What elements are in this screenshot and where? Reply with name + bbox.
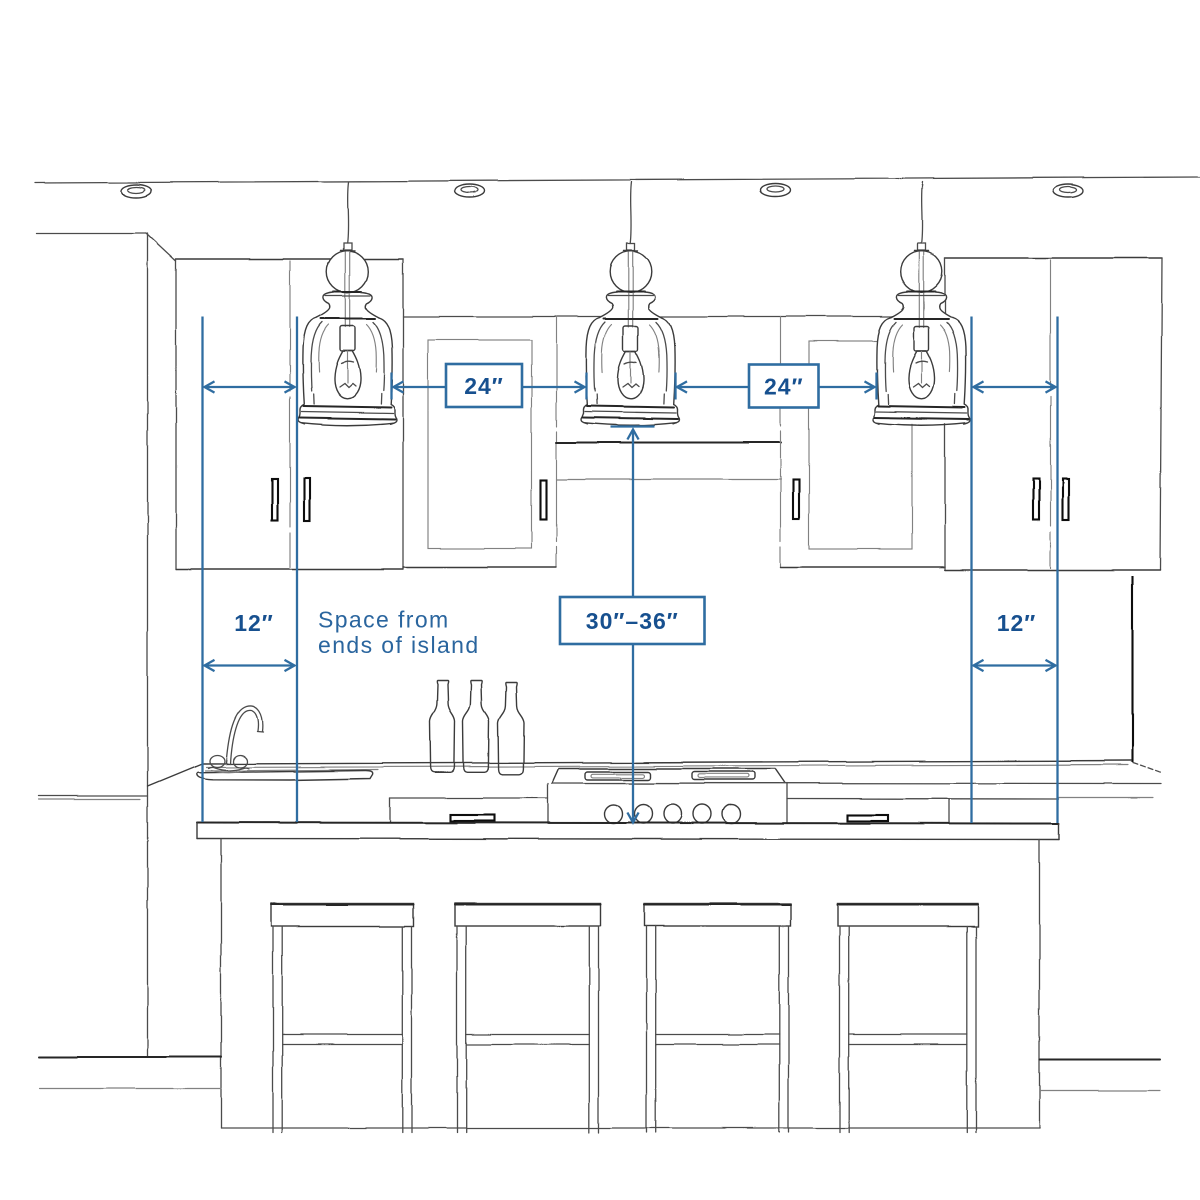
svg-text:ends of island: ends of island xyxy=(318,632,480,658)
svg-text:Space from: Space from xyxy=(318,607,450,633)
svg-text:24″: 24″ xyxy=(764,374,804,400)
svg-text:30″–36″: 30″–36″ xyxy=(586,608,679,634)
svg-text:12″: 12″ xyxy=(234,610,274,636)
svg-text:12″: 12″ xyxy=(997,610,1037,636)
svg-text:24″: 24″ xyxy=(464,373,504,399)
